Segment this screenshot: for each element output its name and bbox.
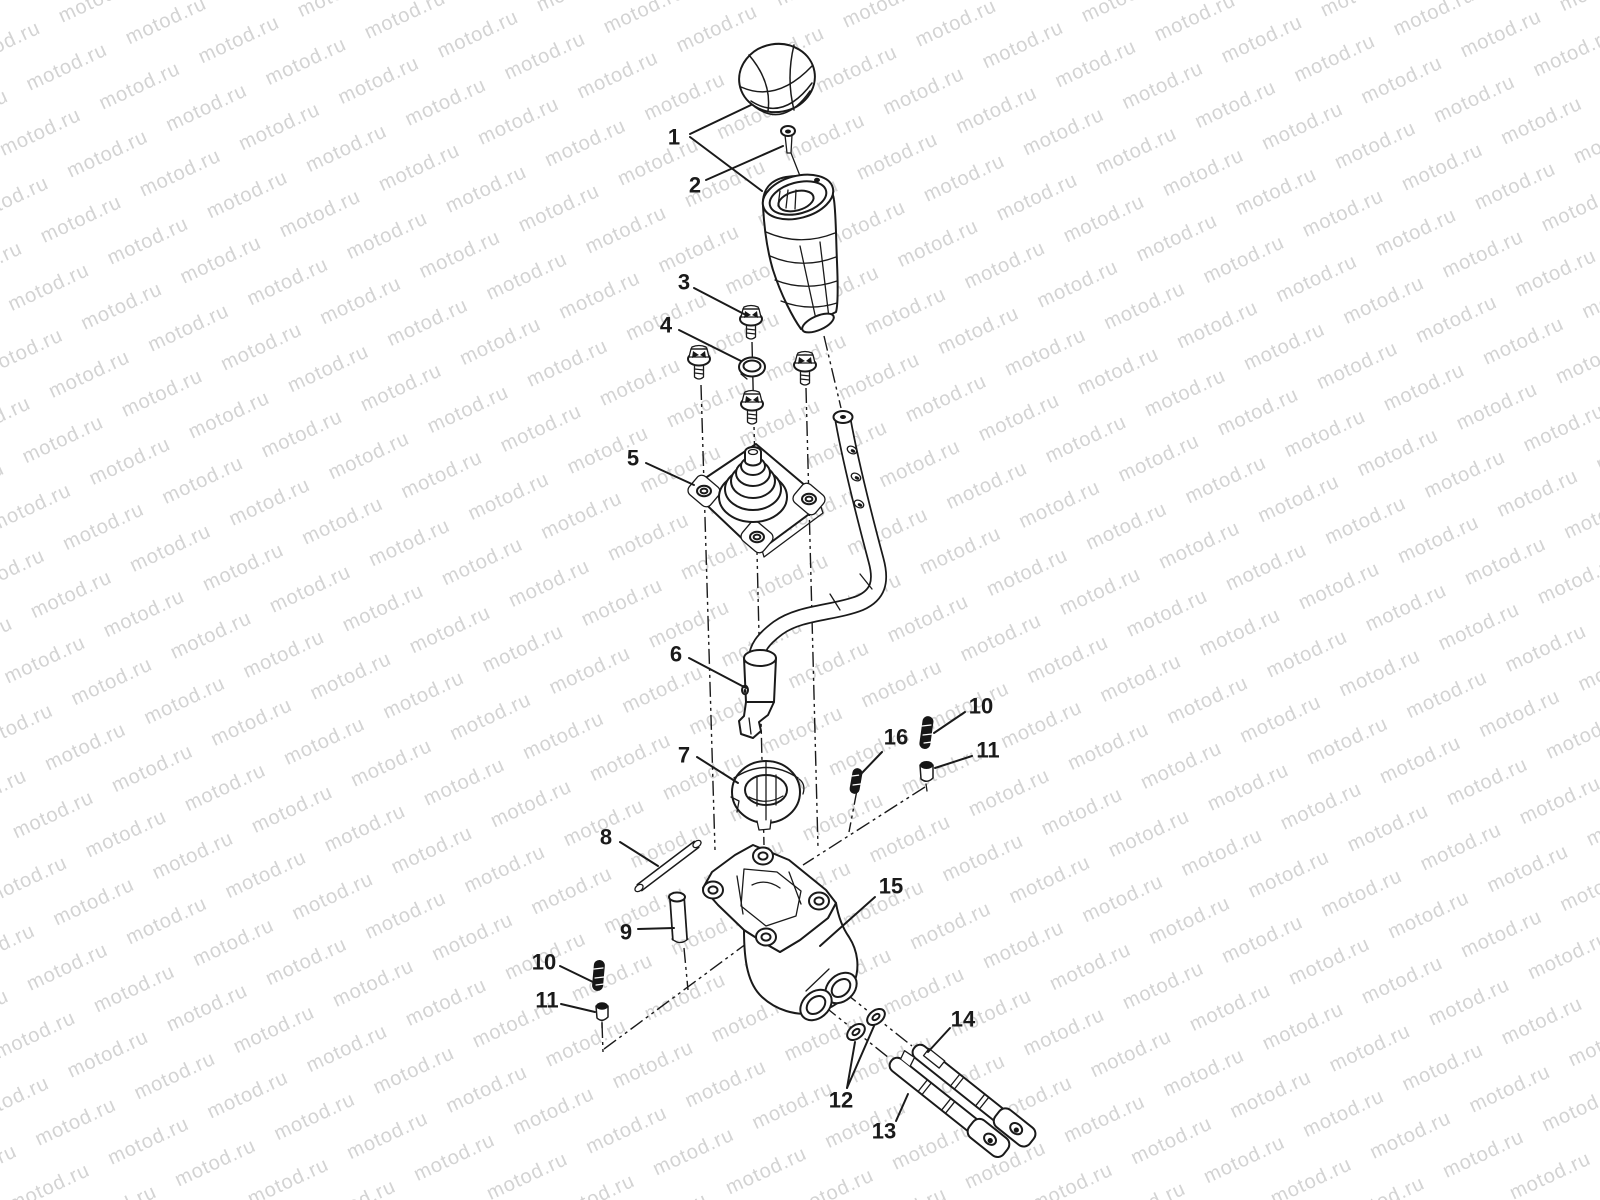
- callout-label-8: 8: [600, 825, 612, 850]
- leader-line-6: [689, 658, 746, 688]
- callout-label-6: 6: [670, 642, 682, 667]
- callout-label-7: 7: [678, 743, 690, 768]
- roll-pin: [634, 839, 703, 893]
- rubber-bellows: [719, 447, 787, 522]
- detent-plug-left: [596, 1002, 608, 1028]
- leader-line-16: [860, 752, 882, 775]
- cover-bolt-left: [688, 346, 710, 380]
- housing-bolt-hole: [809, 893, 829, 910]
- dowel-pin: [669, 893, 688, 943]
- diagram-canvas: motod.ru motod.ru motod.ru motod.ru moto…: [0, 0, 1600, 1200]
- callout-label-10: 10: [969, 694, 993, 719]
- detent-plug-right: [920, 761, 933, 791]
- callout-label-1: 1: [668, 125, 680, 150]
- detent-spring-right: [919, 715, 934, 749]
- callout-label-11: 11: [535, 988, 558, 1013]
- housing-bolt-hole: [756, 929, 776, 946]
- callout-label-11: 11: [976, 738, 999, 763]
- callout-label-14: 14: [951, 1007, 976, 1032]
- gear-lever-grip: [758, 167, 838, 336]
- leader-line-9: [638, 928, 674, 929]
- callout-label-13: 13: [872, 1119, 896, 1144]
- shift-gate: [731, 761, 804, 830]
- leader-line-5: [646, 463, 694, 485]
- callout-label-5: 5: [627, 446, 639, 471]
- detent-spring-16: [849, 767, 863, 794]
- leader-line-1: [690, 105, 751, 134]
- leader-line-14: [928, 1028, 950, 1052]
- callout-label-2: 2: [689, 173, 701, 198]
- housing-bolt-hole: [703, 882, 723, 899]
- selector-housing: [703, 845, 863, 1026]
- shift-boot-assembly: [686, 444, 828, 557]
- callout-label-16: 16: [884, 725, 908, 750]
- exploded-parts-diagram: 123456789101110111213141516: [0, 0, 1600, 1200]
- leader-line-11: [561, 1004, 595, 1012]
- leader-line-3: [694, 288, 744, 314]
- callout-label-4: 4: [660, 313, 673, 338]
- leader-line-7: [697, 757, 738, 783]
- cover-bolt-right: [794, 352, 816, 386]
- leader-line-10: [560, 966, 593, 982]
- callout-label-12: 12: [829, 1088, 853, 1113]
- cover-bolt-mid: [741, 391, 763, 425]
- spacer-ring: [739, 358, 765, 380]
- lever-socket: [739, 650, 776, 738]
- callout-label-10: 10: [532, 950, 556, 975]
- seal-washer: [844, 1021, 868, 1044]
- leader-line-10: [934, 712, 965, 733]
- cover-bolt-3: [740, 306, 762, 340]
- leader-line-8: [620, 842, 658, 866]
- leader-line-2: [706, 146, 783, 180]
- knob-screw: [781, 126, 800, 176]
- leader-line-11: [935, 756, 972, 768]
- callout-label-9: 9: [620, 920, 632, 945]
- detent-spring-left: [592, 960, 606, 992]
- housing-bolt-hole: [753, 848, 773, 865]
- leader-line-13: [896, 1094, 908, 1121]
- callout-label-3: 3: [678, 270, 690, 295]
- callout-label-15: 15: [879, 874, 903, 899]
